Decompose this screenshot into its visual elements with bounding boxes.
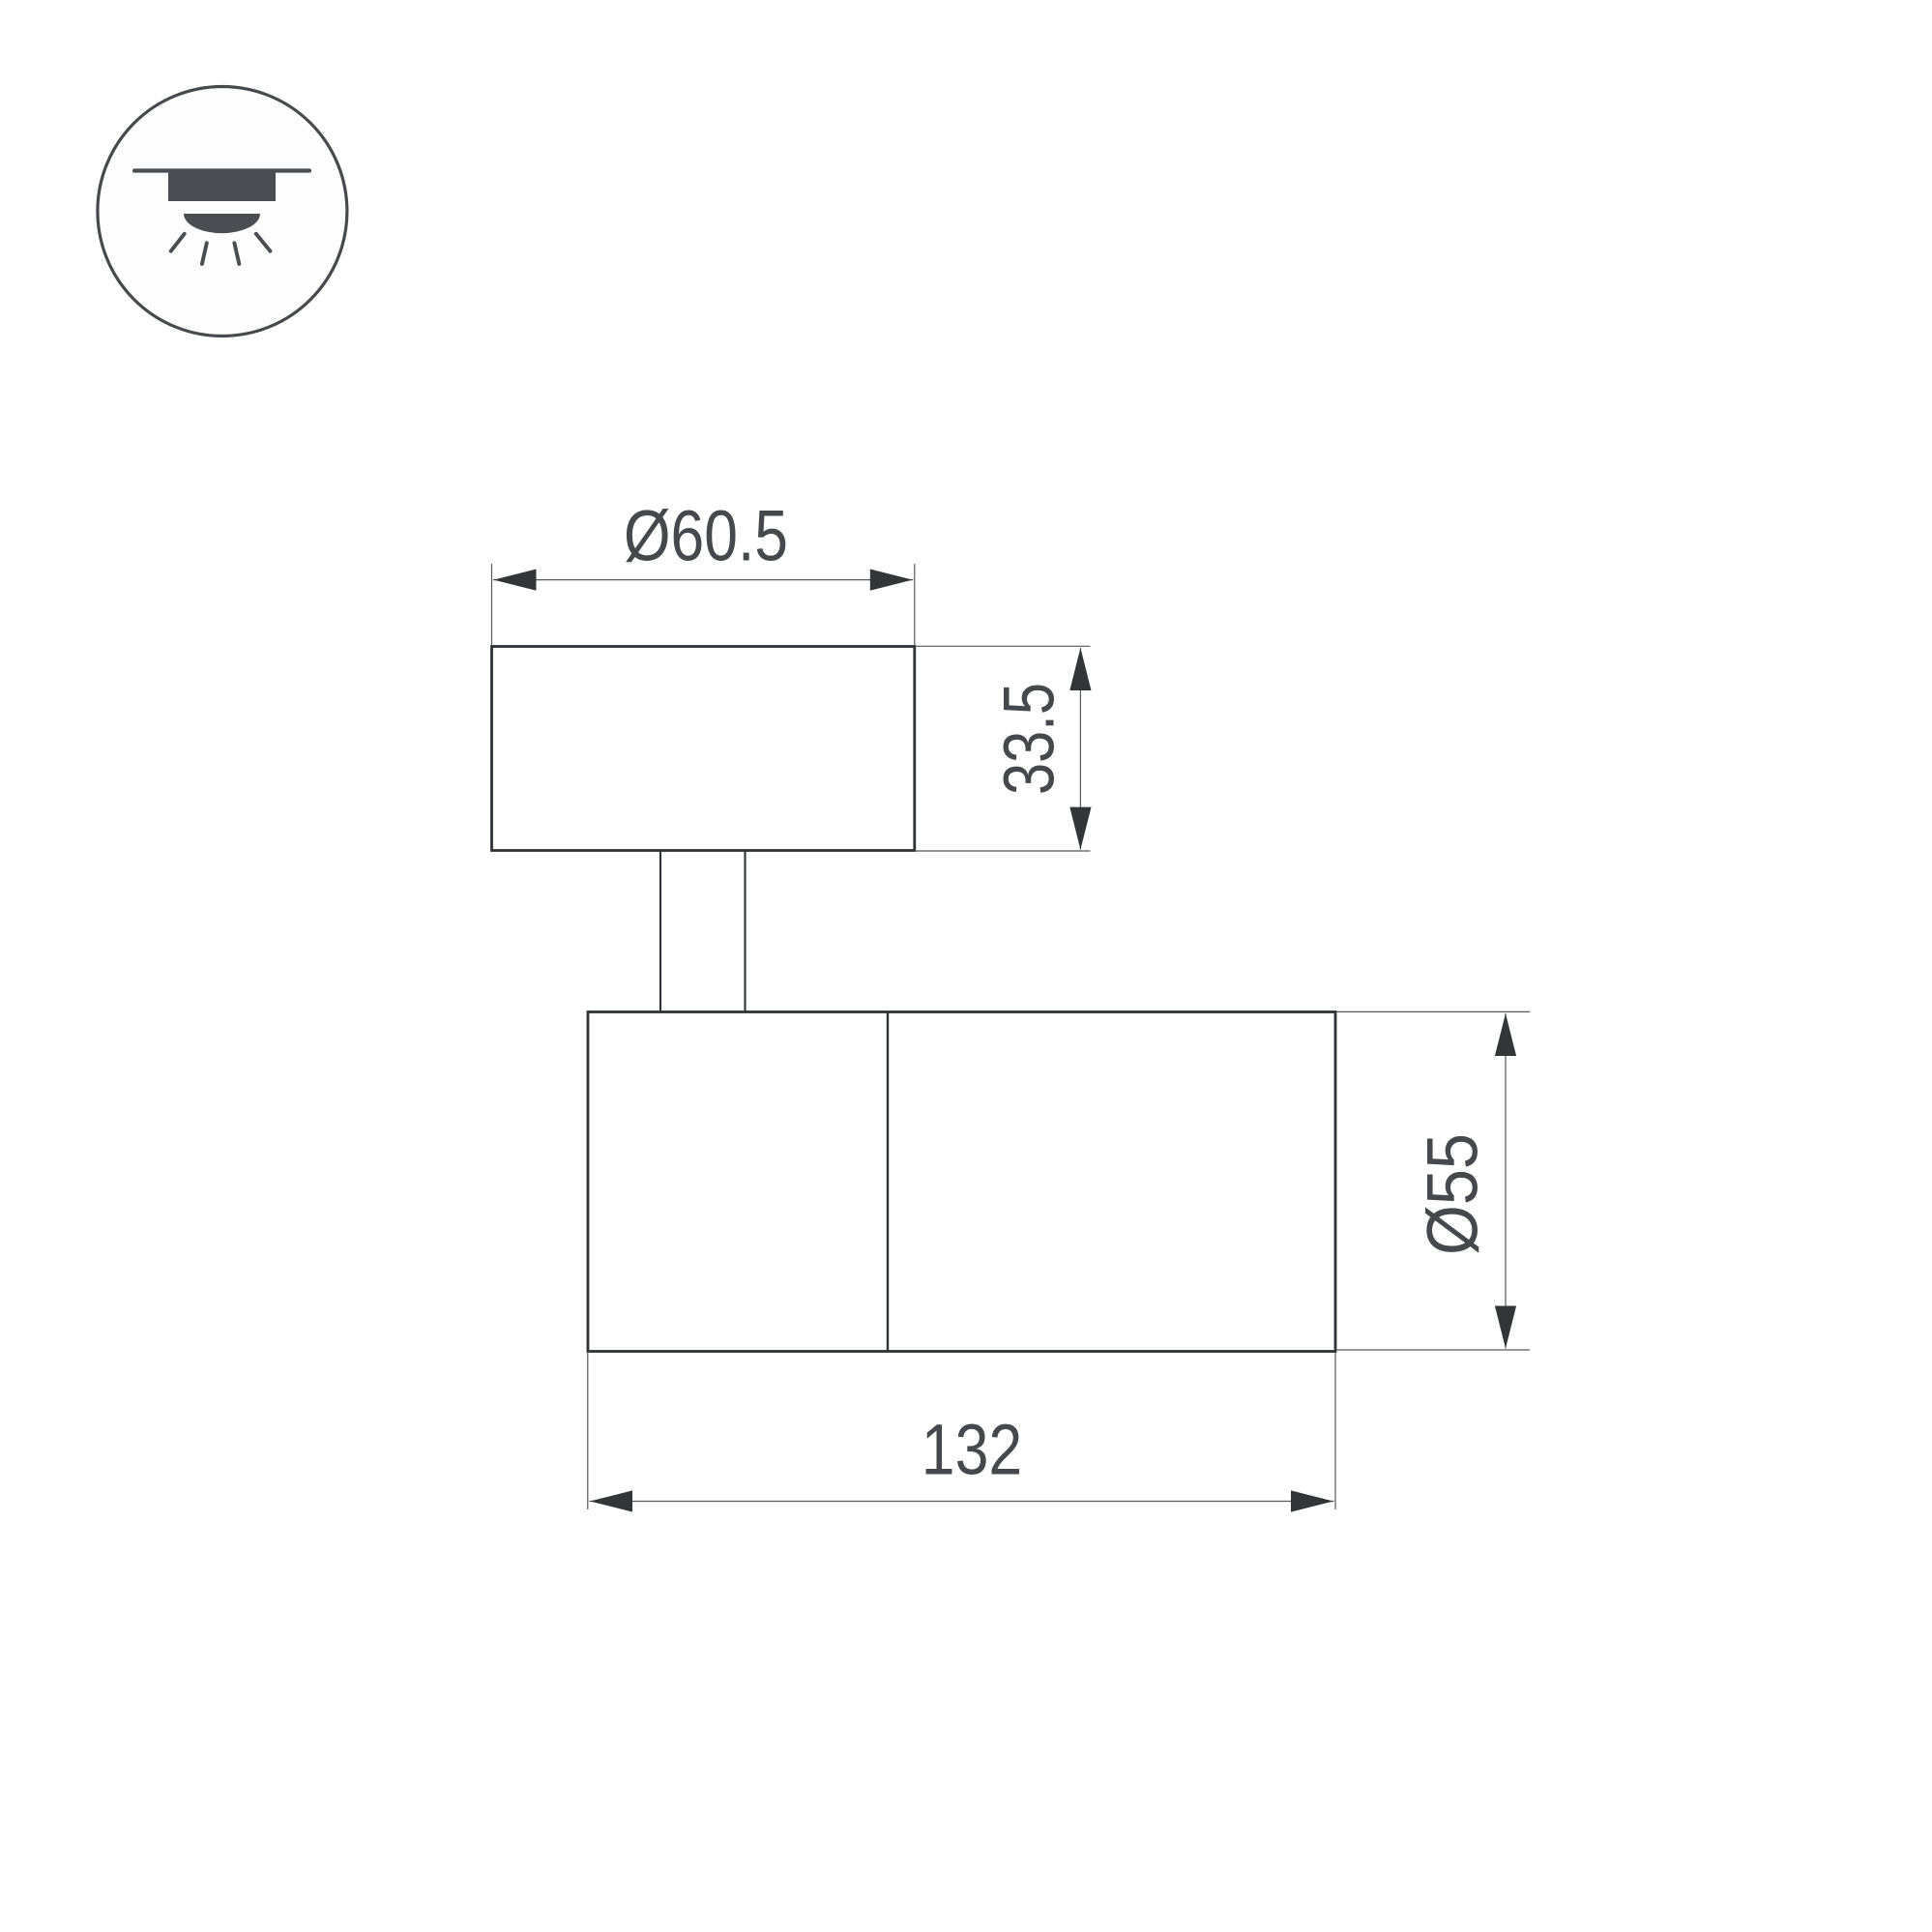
- svg-text:132: 132: [922, 1410, 1023, 1490]
- svg-text:Ø60.5: Ø60.5: [624, 496, 788, 576]
- svg-text:Ø55: Ø55: [1413, 1133, 1493, 1255]
- svg-text:33.5: 33.5: [989, 683, 1069, 795]
